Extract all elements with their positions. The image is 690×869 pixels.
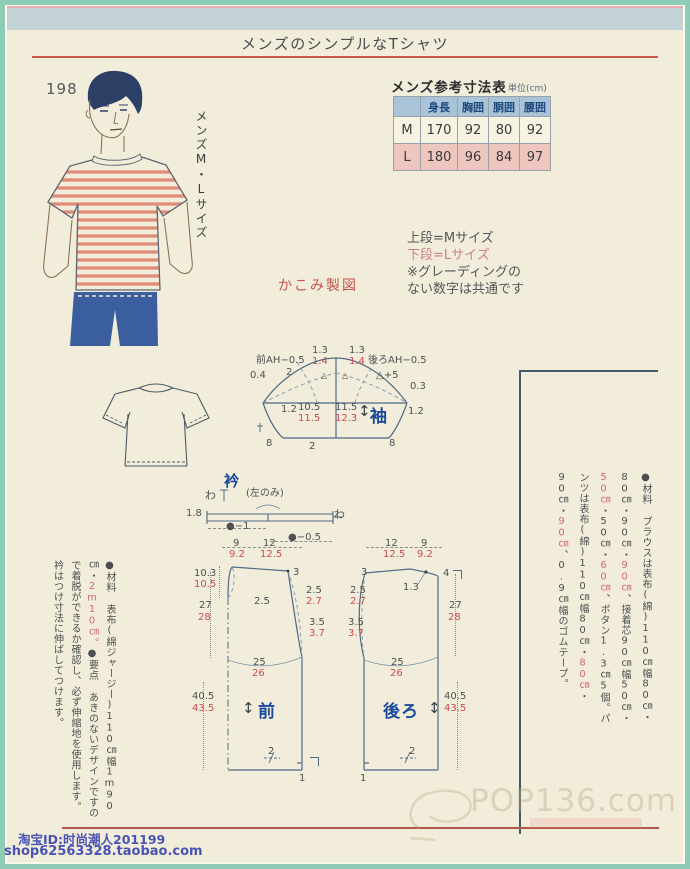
sleeve-name: 袖 xyxy=(370,402,388,427)
cell-height: 170 xyxy=(421,117,458,144)
fold-mark-icon xyxy=(310,757,319,766)
materials-text: ・50㎝・ xyxy=(598,506,609,561)
right-materials-column: ●材料 ブラウスは表布(綿)110㎝幅80㎝・80㎝・90㎝・90㎝、接着芯90… xyxy=(528,472,656,724)
front-w2-l: 12.5 xyxy=(260,549,282,560)
grainline-arrow-icon: ↕ xyxy=(242,699,255,717)
watermark-bar xyxy=(530,818,642,828)
back-chest-m: 25 xyxy=(391,657,404,668)
sleeve-hem-left: 8 xyxy=(266,438,272,449)
grainline-arrow-icon: ↕ xyxy=(428,699,441,717)
cell-hip: 97 xyxy=(520,144,551,171)
back-width-dim xyxy=(366,547,442,548)
size-table-unit: 単位(cm) xyxy=(508,81,547,94)
back-hem1: 1 xyxy=(360,773,366,784)
materials-text: 、0.9㎝幅のゴムテープ。 xyxy=(556,550,567,690)
cell-waist: 84 xyxy=(489,144,520,171)
back-chest-l: 26 xyxy=(390,668,403,679)
size-table: 身長 胸囲 胴囲 腰囲 M 170 92 80 92 L 180 96 84 9… xyxy=(393,96,551,171)
size-notes: 上段=Mサイズ 下段=Lサイズ ※グレーディングの ない数字は共通です xyxy=(407,230,524,298)
shirt-outline xyxy=(48,157,187,290)
sleeve-w2-l: 12.3 xyxy=(335,413,357,424)
shorts xyxy=(70,292,158,346)
sleeve-cap1-m: 1.3 xyxy=(312,345,328,356)
front-w1-l: 9.2 xyxy=(229,549,245,560)
cell-waist: 80 xyxy=(489,117,520,144)
divider-line-vertical xyxy=(519,370,521,834)
col-header-height: 身長 xyxy=(421,97,458,117)
watermark-text: POP136.com xyxy=(470,783,677,819)
sleeve-back-ah-label: 後ろAH−0.5 xyxy=(368,351,427,366)
front-neck-l: 10.5 xyxy=(194,579,216,590)
collar-band xyxy=(92,154,142,165)
front-upper-l: 28 xyxy=(198,612,211,623)
hair xyxy=(88,71,142,114)
sleeve-notch-icon: △ xyxy=(321,371,327,380)
sleeve-front-ah-label: 前AH−0.5 xyxy=(256,351,305,366)
materials-text: 、接着芯90㎝幅50㎝・ xyxy=(619,594,630,724)
shirt-stripes xyxy=(40,172,190,284)
note-line: 下段=Lサイズ xyxy=(407,247,524,264)
sleeve-w1-l: 11.5 xyxy=(298,413,320,424)
left-materials-column: ●材料 表布(綿ジャージー)110㎝幅1m90㎝・2m10㎝。●要点 あきのない… xyxy=(28,560,118,822)
kakomi-label: かこみ製図 xyxy=(278,275,358,295)
sleeve-w1-m: 10.5 xyxy=(298,402,320,413)
back-arm1-m: 2.5 xyxy=(350,585,366,596)
back-upper-l: 28 xyxy=(448,612,461,623)
cell-height: 180 xyxy=(421,144,458,171)
collar-dim2: ●−0.5 xyxy=(288,532,321,543)
materials-text-red: 80㎝ xyxy=(577,658,588,692)
model-illustration xyxy=(30,66,195,350)
front-lower-l: 43.5 xyxy=(192,703,214,714)
taobao-url: shop62563328.taobao.com xyxy=(4,844,203,859)
sleeve-w2-m: 11.5 xyxy=(335,402,357,413)
materials-text-red: 2m10㎝。 xyxy=(87,581,98,648)
front-arm1-l: 2.7 xyxy=(306,596,322,607)
front-lower-m: 40.5 xyxy=(192,691,214,702)
front-neck-depth: 2.5 xyxy=(254,596,270,607)
back-w2-l: 9.2 xyxy=(417,549,433,560)
back-arm1-l: 2.7 xyxy=(350,596,366,607)
sleeve-03: 0.3 xyxy=(410,381,426,392)
back-upper-m: 27 xyxy=(449,600,462,611)
sleeve-04: 0.4 xyxy=(250,370,266,381)
sleeve-notch-icon: △ xyxy=(342,371,348,380)
page-title: メンズのシンプルなTシャツ xyxy=(7,33,683,54)
sleeve-cap1-l: 1.4 xyxy=(312,356,328,367)
front-arm2-m: 3.5 xyxy=(309,617,325,628)
col-header-chest: 胸囲 xyxy=(458,97,489,117)
front-arm1-m: 2.5 xyxy=(306,585,322,596)
front-upper-m: 27 xyxy=(199,600,212,611)
back-lower-m: 40.5 xyxy=(444,691,466,702)
back-w1-l: 12.5 xyxy=(383,549,405,560)
back-arm2-l: 3.7 xyxy=(348,628,364,639)
row-label: L xyxy=(394,144,421,171)
sleeve-hem-right: 8 xyxy=(389,438,395,449)
col-header-hip: 腰囲 xyxy=(520,97,551,117)
grainline-arrow-icon: ↕ xyxy=(358,402,371,420)
size-label-vertical: メンズM・Lサイズ xyxy=(193,110,210,240)
sleeve-cap2-m: 1.3 xyxy=(349,345,365,356)
front-w1-m: 9 xyxy=(233,538,239,549)
back-shoulder: 3 xyxy=(361,567,367,578)
sleeve-left-12: 1.2 xyxy=(281,404,297,415)
magazine-page: メンズのシンプルなTシャツ 198 メンズM・Lサイズ xyxy=(0,0,690,869)
front-shoulder: 3 xyxy=(293,567,299,578)
row-label: M xyxy=(394,117,421,144)
back-lower-l: 43.5 xyxy=(444,703,466,714)
back-neck-depth: 1.3 xyxy=(403,582,419,593)
back-w2-m: 9 xyxy=(421,538,427,549)
front-chest-m: 25 xyxy=(253,657,266,668)
materials-text-red: 60㎝ xyxy=(598,560,609,594)
materials-text-red: 50㎝ xyxy=(598,472,609,506)
divider-line-horizontal xyxy=(520,370,658,372)
front-neck-m: 10.3 xyxy=(194,568,216,579)
front-hem1: 1 xyxy=(299,773,305,784)
note-line: ※グレーディングの xyxy=(407,264,524,281)
collar-fold-left: わ xyxy=(205,487,216,503)
cell-chest: 92 xyxy=(458,117,489,144)
front-name: 前 xyxy=(258,697,276,722)
top-blue-strip xyxy=(7,8,683,30)
col-header-waist: 胴囲 xyxy=(489,97,520,117)
materials-text-red: 90㎝ xyxy=(619,560,630,594)
front-arm2-l: 3.7 xyxy=(309,628,325,639)
table-row-l: L 180 96 84 97 xyxy=(394,144,551,171)
size-table-corner xyxy=(394,97,421,117)
flat-tshirt-drawing xyxy=(95,376,217,476)
sleeve-cap2-l: 1.4 xyxy=(349,356,365,367)
note-line: ない数字は共通です xyxy=(407,281,524,298)
back-w1-m: 12 xyxy=(385,538,398,549)
size-table-title: メンズ参考寸法表 xyxy=(391,76,507,96)
sleeve-hem-center: 2 xyxy=(309,441,315,452)
collar-dim1: ●−1 xyxy=(226,521,249,532)
fold-mark-icon xyxy=(453,570,462,579)
front-neck-dim xyxy=(219,566,220,598)
table-row-m: M 170 92 80 92 xyxy=(394,117,551,144)
materials-text-red: 90㎝ xyxy=(556,516,567,550)
sleeve-notch-plus5: △+5 xyxy=(376,370,398,381)
collar-band-drawing xyxy=(200,503,348,529)
front-chest-l: 26 xyxy=(252,668,265,679)
front-hem2: 2 xyxy=(268,746,274,757)
collar-left-only: (左のみ) xyxy=(246,484,284,499)
cell-chest: 96 xyxy=(458,144,489,171)
back-name: 後ろ xyxy=(383,697,419,722)
sleeve-right-12: 1.2 xyxy=(408,406,424,417)
front-w2-m: 12 xyxy=(263,538,276,549)
back-hem2: 2 xyxy=(409,746,415,757)
cell-hip: 92 xyxy=(520,117,551,144)
back-arm2-m: 3.5 xyxy=(348,617,364,628)
collar-name: 衿 xyxy=(224,470,239,491)
sleeve-2: 2 xyxy=(286,367,292,378)
note-line: 上段=Mサイズ xyxy=(407,230,524,247)
back-cb: 4 xyxy=(443,568,449,579)
title-underline xyxy=(32,56,658,58)
